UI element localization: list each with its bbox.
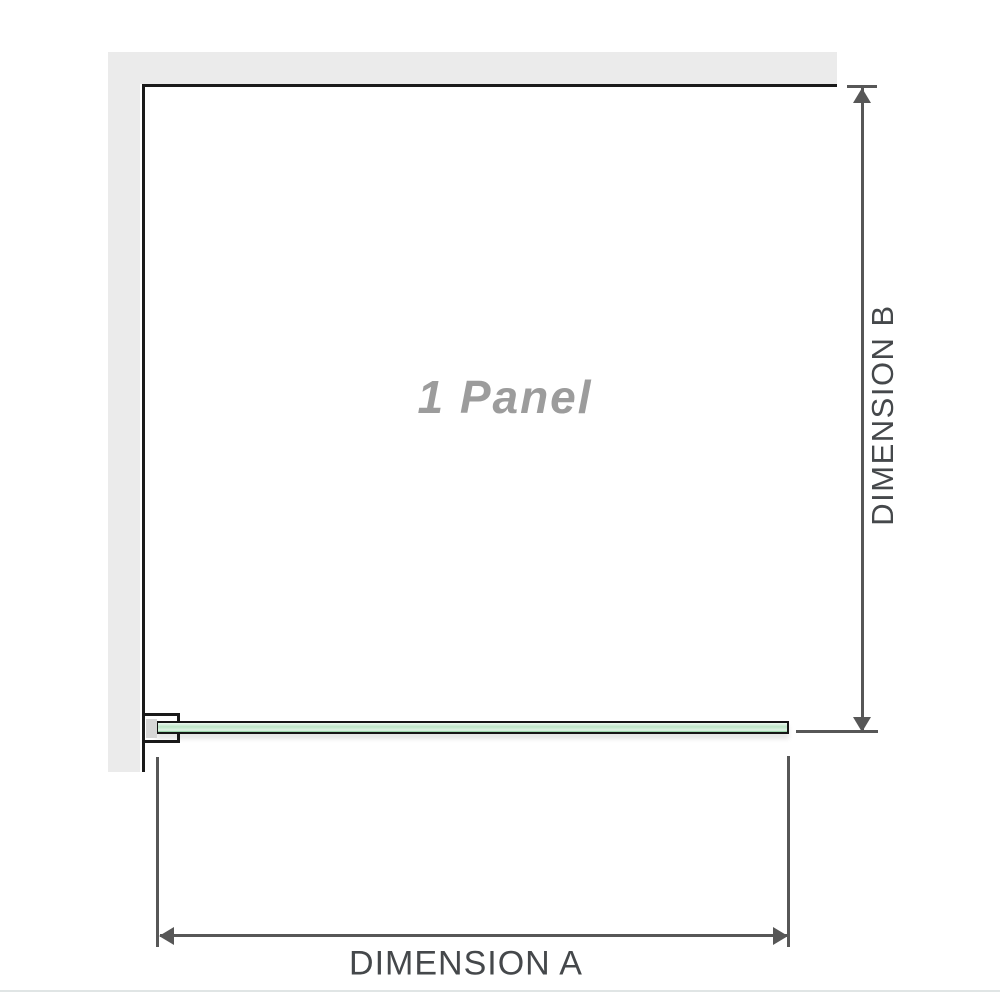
arrow-up-icon: [853, 88, 871, 103]
wall-top: [108, 52, 837, 84]
wall-left: [108, 52, 140, 772]
bracket-pad: [146, 719, 157, 738]
dimension-a-right-extension: [787, 756, 790, 947]
panel-area: [142, 84, 837, 772]
panel-label: 1 Panel: [417, 370, 592, 424]
dimension-a-label: DIMENSION A: [349, 945, 583, 984]
dimension-a-line: [160, 934, 788, 937]
dimension-b-bottom-tick: [796, 730, 878, 733]
page-baseline: [0, 990, 1000, 992]
arrow-right-icon: [773, 927, 788, 945]
dimension-b-label: DIMENSION B: [865, 304, 901, 525]
arrow-left-icon: [159, 927, 174, 945]
glass-panel: [156, 721, 789, 734]
panel-dimension-diagram: 1 Panel DIMENSION B DIMENSION A: [0, 0, 1000, 1000]
dimension-b-line: [861, 88, 864, 732]
dimension-a-left-extension: [156, 757, 159, 947]
